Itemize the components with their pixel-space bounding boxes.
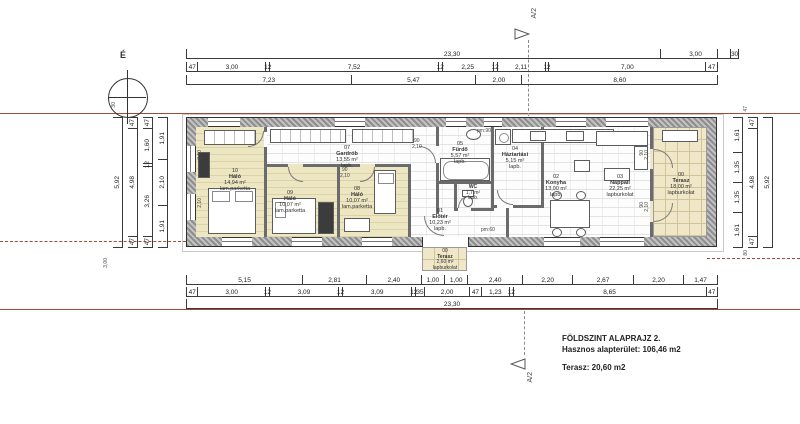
dimension-segment: 1,35 xyxy=(733,153,742,183)
dimension-segment: 4,98 xyxy=(748,129,757,237)
terrace-bench xyxy=(662,130,698,142)
north-symbol-horizontal-line xyxy=(108,97,146,98)
section-marker-bottom-icon xyxy=(510,356,526,372)
dimension-segment: 30 xyxy=(731,49,739,58)
window-bottom-bedroom10 xyxy=(222,237,252,247)
dim-top-main: 473,00127,52122,25122,11127,0047 xyxy=(186,62,718,72)
dimension-segment: 7,00 xyxy=(549,62,706,71)
boundary-line-bottom xyxy=(0,309,800,310)
dimension-segment: 23,30 xyxy=(187,299,718,308)
room-label-bedroom-10: 10Háló 14,94 m²lam.parketta xyxy=(212,168,258,192)
dim-top-extension: 3,0030 xyxy=(660,49,739,59)
floor-plan-canvas: É A/2 A/2 xyxy=(0,0,800,424)
wardrobe-09 xyxy=(318,202,334,234)
dimension-segment: 2,81 xyxy=(303,275,367,284)
door-gap-bedroom10 xyxy=(264,132,267,147)
wardrobe xyxy=(204,130,256,145)
dimension-segment: 8,60 xyxy=(522,75,718,84)
dimension-segment: 7,23 xyxy=(187,75,352,84)
room-label-terrace: 00Terasz 18,00 m²lapburkolat xyxy=(658,172,704,196)
room-label-kitchen: 02Konyha 13,00 m²lapb. xyxy=(533,174,579,198)
dimension-segment: 47 xyxy=(748,118,757,129)
tv-cabinet xyxy=(574,160,590,172)
kitchen-hob xyxy=(566,131,584,141)
dimension-segment: 35 xyxy=(416,287,425,296)
dining-chair-3 xyxy=(552,228,562,237)
wall-bath-bottom xyxy=(436,181,491,184)
section-marker-bottom-label: A/2 xyxy=(527,372,534,383)
closet-row-1 xyxy=(270,129,346,143)
dimension-segment: 2,40 xyxy=(367,275,422,284)
section-line-bottom xyxy=(524,311,525,355)
tag-window-left-lower: 2,10 xyxy=(198,198,203,208)
window-top-bedroom10 xyxy=(208,117,240,127)
dimension-segment: 3,00 xyxy=(198,62,266,71)
tag-left-300: 3,00 xyxy=(104,258,109,268)
dim-left-inner2: 471,60123,2647 xyxy=(143,117,153,248)
dimension-segment: 1,60 xyxy=(143,129,152,164)
tag-window-left-upper: 2,10 xyxy=(198,150,203,160)
room-label-utility: 04Háztartási 5,15 m²lapb. xyxy=(492,146,538,170)
dimension-segment: 2,67 xyxy=(573,275,634,284)
window-top-bath xyxy=(446,117,466,127)
dimension-segment: 2,10 xyxy=(158,160,167,206)
dimension-segment: 5,15 xyxy=(187,275,303,284)
double-bed xyxy=(208,188,256,234)
sofa xyxy=(596,131,648,146)
dimension-segment: 47 xyxy=(706,62,717,71)
dimension-segment: 2,00 xyxy=(476,75,522,84)
dim-bottom-total: 23,30 xyxy=(186,299,718,309)
dimension-segment: 12 xyxy=(143,164,152,168)
kitchen-sink xyxy=(530,131,546,141)
tag-right-47: 47 xyxy=(744,106,749,112)
dimension-segment: 3,09 xyxy=(343,287,413,296)
dim-right-inner: 1,611,351,351,61 xyxy=(733,117,743,248)
dim-right-mid: 474,9847 xyxy=(748,117,758,248)
dim-bottom-upper: 5,152,812,401,001,002,402,202,672,201,47 xyxy=(186,275,718,285)
boundary-line-mid-right xyxy=(707,258,800,259)
north-symbol-icon xyxy=(108,78,148,118)
dimension-segment: 5,92 xyxy=(763,118,772,248)
section-marker-top-label: A/2 xyxy=(531,8,538,19)
door-gap-terrace-1 xyxy=(650,149,653,169)
dimension-segment: 23,30 xyxy=(187,49,718,58)
dimension-segment: 1,61 xyxy=(733,213,742,248)
dimension-segment: 8,65 xyxy=(514,287,707,296)
window-top-utility xyxy=(484,117,502,127)
dimension-segment: 47 xyxy=(128,237,137,248)
north-label: É xyxy=(120,50,126,60)
dim-top-sub: 7,235,472,008,60 xyxy=(186,75,718,85)
tag-offset-30: 30 xyxy=(112,102,117,108)
dimension-segment: 1,91 xyxy=(158,118,167,160)
door-gap-terrace-2 xyxy=(650,201,653,222)
dimension-segment: 47 xyxy=(187,287,198,296)
window-top-living xyxy=(606,117,648,127)
door-gap-utility xyxy=(497,205,513,208)
dimension-segment: 1,61 xyxy=(733,118,742,153)
dimension-segment: 1,35 xyxy=(733,183,742,213)
window-bottom-kitchen xyxy=(544,237,580,247)
tag-bedroom09-door-height: 2,10 xyxy=(340,174,350,179)
window-bottom-bedroom08 xyxy=(362,237,392,247)
dimension-segment: 47 xyxy=(143,118,152,129)
dimension-segment: 2,20 xyxy=(523,275,573,284)
tag-right-80: 80 xyxy=(744,250,749,256)
dimension-segment: 2,25 xyxy=(443,62,494,71)
dimension-segment: 4,98 xyxy=(128,129,137,237)
entry-door-opening xyxy=(422,237,469,247)
dimension-segment: 1,91 xyxy=(158,206,167,248)
tag-bath-door-height: 2,10 xyxy=(412,145,422,150)
tag-terrace-door1-height: 2,10 xyxy=(645,150,650,160)
dimension-segment: 3,09 xyxy=(270,287,340,296)
dim-bottom-main: 473,00123,09123,0912352,00471,23128,6547 xyxy=(186,287,718,297)
window-left-lower xyxy=(186,194,196,220)
dimension-segment: 47 xyxy=(128,118,137,129)
wall-hall-kitchen xyxy=(506,205,509,237)
plan-net-area: Hasznos alapterület: 106,46 m2 xyxy=(562,344,681,355)
dimension-segment: 47 xyxy=(748,237,757,248)
room-label-hall: 01Előtér 10,23 m²lapb. xyxy=(417,208,463,232)
tag-parapet-90: pm:90 xyxy=(477,129,491,134)
dimension-segment: 5,47 xyxy=(352,75,477,84)
plan-terrace-area: Terasz: 20,60 m2 xyxy=(562,362,625,373)
dimension-segment: 47 xyxy=(707,287,718,296)
room-label-bedroom-09: 09Háló 10,07 m²lam.parketta xyxy=(267,190,313,214)
dimension-segment: 1,00 xyxy=(422,275,445,284)
room-label-wardrobe: 07Gardrób 13,55 m²lapb. xyxy=(324,145,370,169)
dim-left-inner1: 1,912,101,91 xyxy=(158,117,168,248)
room-label-wc: WC1,7 m²lapb. xyxy=(456,185,490,202)
dimension-segment: 47 xyxy=(143,237,152,248)
plan-title: FÖLDSZINT ALAPRAJZ 2. xyxy=(562,333,660,344)
window-top-wardrobe xyxy=(335,117,365,127)
dim-left-outer: 5,92 xyxy=(113,117,123,248)
dimension-segment: 5,92 xyxy=(113,118,122,248)
dimension-segment: 2,40 xyxy=(468,275,523,284)
dimension-segment: 2,20 xyxy=(634,275,684,284)
dimension-segment: 47 xyxy=(187,62,198,71)
dimension-segment: 2,11 xyxy=(498,62,546,71)
dimension-segment: 1,47 xyxy=(684,275,718,284)
dimension-segment: 2,00 xyxy=(425,287,470,296)
dim-right-outer: 5,92 xyxy=(763,117,773,248)
room-label-living: 03Nappali 22,25 m²lapburkolat xyxy=(597,174,643,198)
window-left-upper xyxy=(186,146,196,172)
window-top-kitchen xyxy=(556,117,586,127)
wall-bedroom08-right xyxy=(408,164,411,237)
window-bottom-bedroom09 xyxy=(292,237,322,247)
desk-08 xyxy=(344,218,370,232)
dimension-segment: 1,23 xyxy=(482,287,510,296)
window-bottom-living xyxy=(600,237,644,247)
closet-row-2 xyxy=(352,129,414,143)
room-label-bath: 05Fürdő 5,57 m²lapb. xyxy=(437,141,483,165)
tag-terrace-door2-height: 2,10 xyxy=(645,202,650,212)
tag-parapet-60: pm:60 xyxy=(481,228,495,233)
dining-chair-4 xyxy=(576,228,586,237)
dimension-segment: 3,26 xyxy=(143,167,152,237)
dim-left-mid: 474,9847 xyxy=(128,117,138,248)
dimension-segment: 1,00 xyxy=(445,275,468,284)
dining-table xyxy=(550,200,590,228)
dim-top-total: 23,30 xyxy=(186,49,718,59)
room-label-bedroom-08: 08Háló 10,07 m²lam.parketta xyxy=(334,186,380,210)
dimension-segment: 3,00 xyxy=(661,49,731,58)
dimension-segment: 7,52 xyxy=(270,62,439,71)
washing-machine xyxy=(495,129,511,145)
dimension-segment: 3,00 xyxy=(198,287,266,296)
room-label-entry-terrace: 00Terasz 2,60 m²lapburkolat xyxy=(422,249,468,271)
dimension-segment: 47 xyxy=(470,287,481,296)
